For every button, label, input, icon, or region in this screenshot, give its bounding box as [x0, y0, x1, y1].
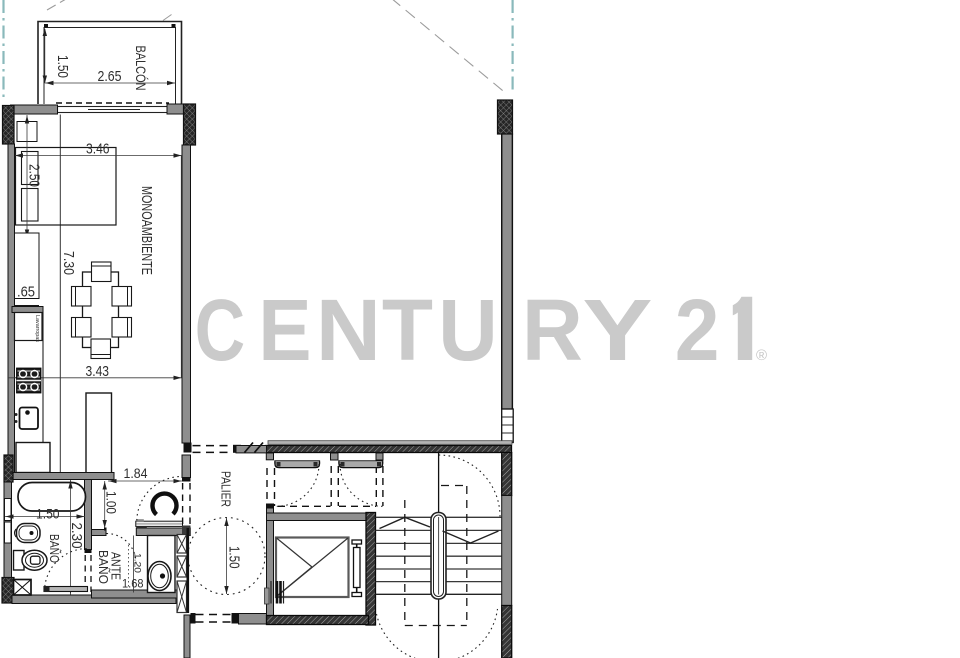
svg-text:E: E	[258, 282, 311, 379]
svg-text:1.68: 1.68	[122, 577, 144, 591]
svg-text:N: N	[316, 282, 381, 379]
svg-text:C: C	[195, 282, 246, 379]
svg-text:®: ®	[756, 347, 767, 364]
svg-text:MONOAMBIENTE: MONOAMBIENTE	[138, 186, 154, 275]
svg-text:R: R	[522, 282, 583, 379]
svg-text:2: 2	[675, 282, 720, 379]
svg-text:7.30: 7.30	[60, 251, 77, 275]
svg-text:Y: Y	[582, 282, 652, 379]
svg-text:2.50: 2.50	[26, 164, 43, 187]
svg-text:BALCÓN: BALCÓN	[133, 46, 149, 91]
svg-text:U: U	[438, 282, 498, 379]
svg-text:3.46: 3.46	[86, 141, 110, 158]
svg-text:.65: .65	[17, 284, 35, 301]
svg-text:BAÑO: BAÑO	[96, 550, 110, 584]
svg-text:1.84: 1.84	[124, 465, 148, 481]
svg-text:3.43: 3.43	[86, 363, 110, 380]
svg-text:1.50: 1.50	[54, 55, 71, 78]
svg-text:1.50: 1.50	[226, 546, 242, 569]
svg-text:BAÑO: BAÑO	[47, 534, 62, 563]
svg-text:2.30: 2.30	[68, 523, 85, 549]
svg-text:T: T	[382, 282, 433, 379]
svg-text:1.20: 1.20	[132, 553, 143, 573]
svg-text:2.65: 2.65	[98, 68, 122, 85]
svg-text:PALIER: PALIER	[219, 471, 233, 507]
svg-text:1.00: 1.00	[104, 491, 120, 514]
svg-text:Lavarropas: Lavarropas	[34, 315, 40, 343]
svg-text:1.50: 1.50	[36, 506, 60, 522]
